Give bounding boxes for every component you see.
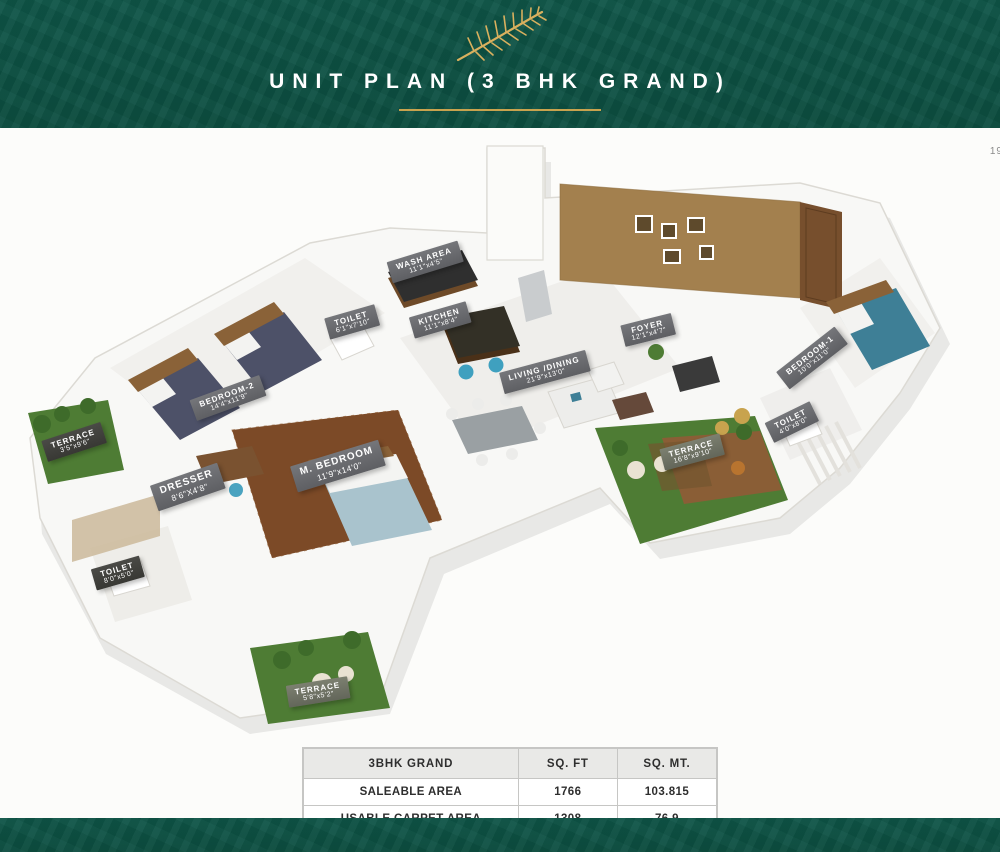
area-sqft: 1766 — [518, 779, 617, 806]
gold-fern-leaf-icon — [440, 4, 560, 66]
col-header-sqmt: SQ. MT. — [617, 749, 716, 779]
table-header-row: 3BHK GRAND SQ. FT SQ. MT. — [304, 749, 717, 779]
tall-wall-slab — [487, 146, 543, 260]
area-label: SALEABLE AREA — [304, 779, 519, 806]
footer-band — [0, 818, 1000, 852]
title-underline — [399, 109, 601, 111]
accent-chair — [734, 408, 750, 424]
area-sqmt: 103.815 — [617, 779, 716, 806]
col-header-sqft: SQ. FT — [518, 749, 617, 779]
floorplan-3d-render — [0, 138, 1000, 748]
col-header-unit: 3BHK GRAND — [304, 749, 519, 779]
foyer-accent-wall — [560, 184, 800, 298]
page-title: UNIT PLAN (3 BHK GRAND) — [0, 70, 1000, 94]
unit-plan-page: UNIT PLAN (3 BHK GRAND) 19 — [0, 0, 1000, 852]
page-header: UNIT PLAN (3 BHK GRAND) — [0, 0, 1000, 128]
table-row: SALEABLE AREA 1766 103.815 — [304, 779, 717, 806]
